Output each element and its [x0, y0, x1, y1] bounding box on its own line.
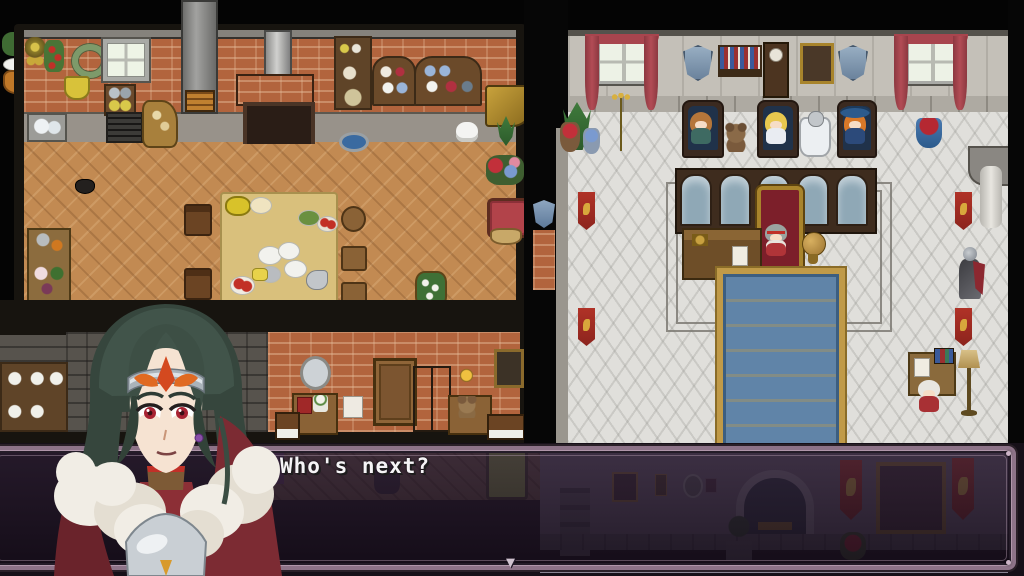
flower-pots — [486, 155, 524, 185]
curtain-right-b — [953, 36, 967, 110]
wall-portrait — [800, 43, 834, 84]
divider-brick-pillar — [533, 230, 555, 290]
dialogue-text: Who's next? — [280, 454, 430, 478]
tomato-plate — [317, 216, 338, 232]
jar-shelf — [334, 36, 372, 110]
fireplace-mantle — [238, 76, 312, 104]
blue-flower-pot — [583, 128, 600, 154]
sack-basket — [490, 228, 522, 245]
table-teapot — [306, 270, 328, 290]
stool-1 — [341, 246, 367, 271]
hero-portrait — [52, 298, 284, 576]
bowl-3 — [284, 260, 307, 278]
rose-pot-left — [560, 122, 580, 152]
water-basin — [339, 132, 369, 152]
chair-left-1 — [184, 204, 212, 236]
counter-sink — [27, 113, 67, 142]
dining-table — [220, 192, 338, 308]
wall-basin — [64, 76, 90, 100]
throne-window-right — [906, 40, 960, 84]
banner-right-1 — [955, 192, 972, 230]
curtain-left-b — [644, 36, 658, 110]
witch-hat — [840, 106, 870, 118]
fireplace-hearth — [243, 102, 315, 144]
banner-left-1 — [578, 192, 595, 230]
continue-indicator-icon[interactable]: ▼ — [506, 556, 515, 568]
tomato-bowl — [230, 276, 255, 295]
blue-carpet — [717, 268, 845, 455]
alcove-shelf-1 — [372, 56, 416, 106]
dumpling-plate — [250, 197, 272, 214]
alcove-shelf-2 — [414, 56, 482, 106]
prep-table — [27, 228, 71, 302]
desk-emblem — [692, 234, 708, 246]
round-stool — [341, 206, 366, 232]
curtain-right-a — [894, 36, 908, 110]
bedroom-door — [373, 358, 417, 426]
kettle — [75, 179, 95, 194]
earring — [195, 434, 203, 442]
clock-face — [769, 48, 783, 62]
desk-papers — [732, 246, 748, 266]
wall-bookshelf — [718, 45, 762, 77]
game-screen: Who's next? ▼ — [0, 0, 1024, 576]
kitchen-window — [103, 39, 149, 81]
npc-witch-girl — [843, 112, 867, 146]
cups — [252, 268, 268, 281]
npc-clerk — [917, 380, 941, 414]
wall-mirror — [300, 356, 331, 390]
white-column — [980, 166, 1002, 228]
curtain-left-a — [585, 36, 599, 110]
small-painting — [494, 349, 524, 388]
throne-window-left — [597, 40, 651, 84]
hero-portrait-art — [52, 298, 284, 576]
npc-blonde-princess — [764, 112, 788, 146]
tea-side-table — [799, 117, 831, 157]
banner-right-2 — [955, 308, 972, 346]
bread-baskets — [142, 100, 178, 148]
teddy-bear — [457, 396, 477, 418]
bowl-2 — [278, 242, 300, 260]
hanging-gourds — [25, 37, 45, 71]
firewood — [185, 90, 215, 112]
wall-sconce — [460, 360, 473, 382]
hanging-tomato-vine — [44, 40, 64, 72]
dialogue-rivet-tr — [1006, 451, 1011, 456]
globe — [801, 230, 825, 266]
yellow-pot — [225, 196, 251, 216]
dialogue-rivet-br — [1006, 560, 1011, 565]
npc-auburn-lady — [689, 112, 713, 146]
candelabra-candles — [612, 93, 630, 101]
divider-stone-edge — [556, 128, 568, 443]
clerk-paper — [914, 358, 930, 377]
stove — [106, 112, 143, 143]
chair-left-2 — [184, 268, 212, 300]
floor-lamp — [956, 350, 982, 418]
candelabra — [612, 93, 630, 151]
armor-stand — [955, 243, 985, 305]
bed-right — [487, 414, 525, 440]
flower-vase — [313, 395, 328, 412]
banner-left-2 — [578, 308, 595, 346]
wall-note — [343, 396, 363, 418]
teddy-bear-throne — [725, 122, 747, 152]
grandfather-clock — [763, 42, 789, 98]
rose-vase-right — [916, 118, 942, 148]
wardrobe — [413, 366, 451, 432]
npc-queen-seated — [764, 224, 788, 258]
white-cat — [456, 122, 478, 142]
clerk-books — [934, 348, 954, 364]
silver-teapot — [808, 111, 824, 127]
